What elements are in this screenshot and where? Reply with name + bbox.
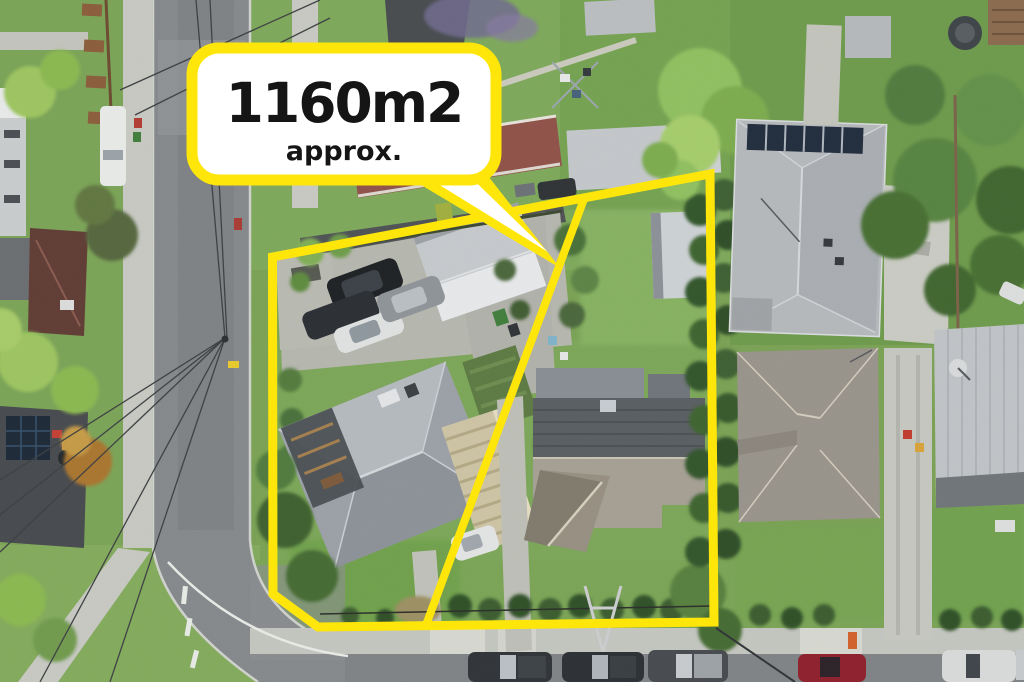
photo-grain — [0, 0, 1024, 682]
aerial-photo: 1160m2 approx. — [0, 0, 1024, 682]
callout-qualifier-text: approx. — [286, 136, 402, 167]
callout-area-text: 1160m2 — [226, 71, 463, 135]
